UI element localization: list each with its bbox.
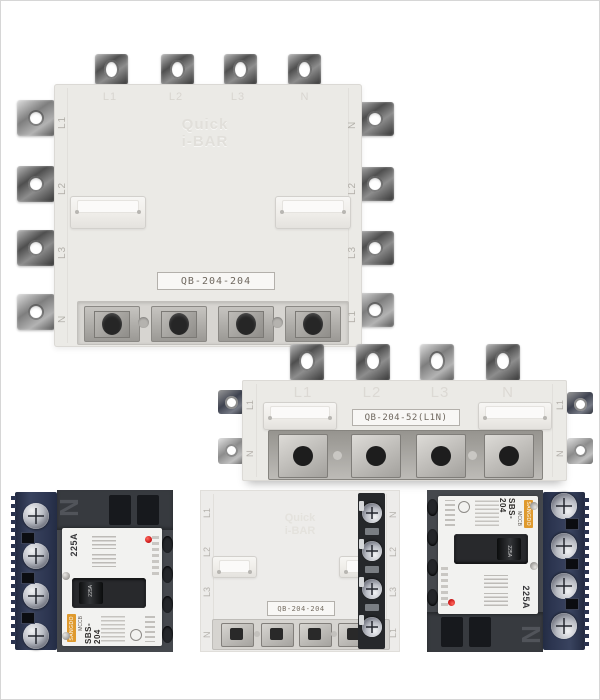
terminal-block-dark bbox=[358, 493, 385, 649]
screw-terminal bbox=[285, 306, 341, 342]
terminal-slot-icon bbox=[565, 518, 579, 530]
clip-screw-icon bbox=[217, 570, 221, 574]
lug-hole-icon bbox=[28, 240, 44, 256]
side-phase-label: L2 bbox=[202, 537, 212, 557]
clip-screw-icon bbox=[344, 570, 348, 574]
breaker-housing: N 225A 225A bbox=[427, 490, 543, 652]
cutout-icon bbox=[162, 626, 173, 643]
screw-icon bbox=[530, 502, 538, 510]
terminal-lug-icon bbox=[17, 100, 55, 136]
ce-mark-icon bbox=[130, 629, 142, 641]
lug-hole-icon bbox=[367, 240, 383, 256]
busbar-tab-icon bbox=[365, 528, 379, 535]
screw-icon bbox=[551, 613, 577, 639]
phase-label: L3 bbox=[431, 384, 450, 401]
breaker-top-band: N bbox=[427, 612, 543, 652]
terminal-block-blue bbox=[15, 492, 57, 650]
margin-line bbox=[256, 384, 257, 477]
tray-dot-icon bbox=[331, 631, 337, 637]
screw-terminal bbox=[261, 623, 294, 647]
terminal-lug-icon bbox=[17, 294, 55, 330]
screw-terminal bbox=[416, 434, 466, 478]
breaker-model-label: SBS-204 bbox=[84, 614, 102, 644]
side-phase-label: L1 bbox=[57, 107, 68, 129]
tray-dot-icon bbox=[468, 451, 477, 460]
screw-terminal bbox=[351, 434, 401, 478]
vent-icon bbox=[109, 495, 131, 525]
mounting-clip bbox=[478, 402, 552, 430]
terminal-lug-icon bbox=[95, 54, 128, 85]
terminal-tray bbox=[77, 301, 349, 345]
side-phase-label: L2 bbox=[347, 173, 358, 195]
cert-text-column bbox=[441, 566, 448, 606]
lug-hole-icon bbox=[225, 396, 238, 409]
spec-text-lines bbox=[92, 554, 116, 567]
tray-dot-icon bbox=[272, 317, 283, 328]
housing-letter: N bbox=[516, 625, 547, 644]
mounting-clip bbox=[212, 556, 257, 578]
breaker-front-panel: 225A 225A SANGDO MCCB SBS-204 bbox=[62, 528, 162, 646]
breaker-toggle-recess: 225A bbox=[72, 578, 146, 608]
lug-hole-icon bbox=[28, 304, 44, 320]
phase-label: L2 bbox=[363, 384, 382, 401]
nameplate-area: SANGDO MCCB SBS-204 bbox=[441, 498, 533, 528]
phase-label: L1 bbox=[103, 91, 117, 103]
clip-screw-icon bbox=[543, 416, 547, 420]
busbar-tab-icon bbox=[365, 604, 379, 611]
phase-label: N bbox=[502, 384, 514, 401]
screw-terminal bbox=[84, 306, 140, 342]
screw-icon bbox=[551, 573, 577, 599]
screw-icon bbox=[362, 503, 382, 523]
lug-hole-icon bbox=[367, 176, 383, 192]
clip-screw-icon bbox=[268, 416, 272, 420]
spec-text-lines bbox=[475, 500, 499, 526]
side-phase-label: L1 bbox=[555, 390, 565, 410]
terminal-slot-icon bbox=[565, 558, 579, 570]
terminal-tray bbox=[268, 430, 543, 480]
terminal-lug-icon bbox=[17, 166, 55, 202]
lug-hole-icon bbox=[429, 351, 445, 371]
busbar-adapter-front: L1 L2 L3 N Quick i-BAR QB-204-204 L1 L2 … bbox=[54, 84, 362, 347]
terminal-lug-icon bbox=[218, 390, 244, 414]
busbar-tab-icon bbox=[365, 566, 379, 573]
connector-mark-icon bbox=[359, 539, 364, 549]
screw-icon bbox=[62, 572, 70, 580]
side-phase-label: L1 bbox=[347, 301, 358, 323]
terminal-lug-icon bbox=[357, 102, 394, 136]
side-phase-label: L2 bbox=[388, 537, 398, 557]
lug-hole-icon bbox=[28, 176, 44, 192]
circuit-breaker-left: N 225A 225A bbox=[15, 490, 200, 652]
tray-dot-icon bbox=[333, 451, 342, 460]
model-label: QB-204-204 bbox=[157, 272, 275, 290]
brand-emboss: Quick bbox=[285, 512, 316, 524]
terminal-slot-icon bbox=[21, 612, 35, 624]
model-label: QB-204-204 bbox=[267, 601, 335, 616]
terminal-slot-icon bbox=[565, 598, 579, 610]
phase-label: L3 bbox=[231, 91, 245, 103]
phase-label: N bbox=[301, 91, 310, 103]
spec-text-lines bbox=[92, 536, 116, 549]
toggle-rating-label: 225A bbox=[88, 585, 94, 597]
screw-terminal bbox=[151, 306, 207, 342]
screw-icon bbox=[23, 503, 49, 529]
breaker-housing: N 225A 225A bbox=[57, 490, 173, 652]
screw-terminal bbox=[278, 434, 328, 478]
cert-marks-icon bbox=[445, 500, 455, 526]
lug-hole-icon bbox=[233, 60, 248, 79]
screw-icon bbox=[23, 623, 49, 649]
mounting-clip bbox=[70, 196, 146, 229]
breaker-toggle-handle: 225A bbox=[497, 538, 521, 560]
screw-icon bbox=[23, 583, 49, 609]
side-phase-label: L3 bbox=[57, 237, 68, 259]
mounting-clip bbox=[275, 196, 351, 229]
terminal-lug-icon bbox=[486, 344, 520, 381]
terminal-lug-icon bbox=[218, 438, 244, 464]
circuit-breaker-right: N 225A 225A bbox=[400, 490, 585, 652]
busbar-strip-adapter: L1 L2 L3 N QB-204-52(L1N) L1 N L1 N bbox=[242, 380, 567, 481]
lug-hole-icon bbox=[574, 398, 587, 411]
nameplate-area: SANGDO MCCB SBS-204 bbox=[67, 614, 159, 644]
vent-icon bbox=[137, 495, 159, 525]
side-phase-label: L1 bbox=[245, 390, 255, 410]
breaker-toggle-handle: 225A bbox=[79, 582, 103, 604]
brand-emboss: i-BAR bbox=[182, 133, 229, 150]
lug-hole-icon bbox=[365, 351, 381, 371]
screw-icon bbox=[530, 562, 538, 570]
breaker-model-label: SBS-204 bbox=[498, 498, 516, 528]
lug-hole-icon bbox=[170, 60, 185, 79]
terminal-lug-icon bbox=[357, 231, 394, 265]
side-phase-label: N bbox=[245, 437, 255, 457]
screw-icon bbox=[362, 541, 382, 561]
cutout-icon bbox=[427, 589, 438, 606]
clip-screw-icon bbox=[248, 570, 252, 574]
brand-emboss: i-BAR bbox=[285, 525, 316, 537]
breaker-toggle-recess: 225A bbox=[454, 534, 528, 564]
lug-hole-icon bbox=[367, 302, 383, 318]
trip-indicator-icon bbox=[145, 536, 152, 543]
clip-screw-icon bbox=[75, 210, 79, 214]
screw-terminal bbox=[218, 306, 274, 342]
side-phase-label: N bbox=[57, 301, 68, 323]
side-phase-label: L3 bbox=[202, 577, 212, 597]
terminal-lug-icon bbox=[356, 344, 390, 381]
terminal-lug-icon bbox=[17, 230, 55, 266]
clip-screw-icon bbox=[342, 210, 346, 214]
side-phase-label: N bbox=[555, 437, 565, 457]
cutout-icon bbox=[427, 559, 438, 576]
screw-terminal bbox=[221, 623, 254, 647]
cert-text-column bbox=[152, 536, 159, 576]
spec-text-lines bbox=[101, 616, 125, 642]
clip-screw-icon bbox=[483, 416, 487, 420]
spec-text-lines bbox=[484, 575, 508, 588]
terminal-lug-icon bbox=[288, 54, 321, 85]
clip-screw-icon bbox=[328, 416, 332, 420]
screw-icon bbox=[362, 579, 382, 599]
terminal-slot-icon bbox=[21, 572, 35, 584]
terminal-lug-icon bbox=[161, 54, 194, 85]
cutout-icon bbox=[162, 566, 173, 583]
side-phase-label: L2 bbox=[57, 173, 68, 195]
brand-emboss: Quick bbox=[182, 116, 229, 133]
vent-icon bbox=[441, 617, 463, 647]
screw-terminal bbox=[299, 623, 332, 647]
lug-hole-icon bbox=[367, 111, 383, 127]
lug-hole-icon bbox=[225, 444, 238, 457]
terminal-lug-icon bbox=[357, 293, 394, 327]
tray-dot-icon bbox=[254, 631, 260, 637]
rating-label: 225A bbox=[521, 585, 531, 609]
lug-hole-icon bbox=[299, 351, 315, 371]
connector-mark-icon bbox=[359, 501, 364, 511]
terminal-lug-icon bbox=[567, 392, 593, 414]
terminal-lug-icon bbox=[567, 438, 593, 464]
lug-hole-icon bbox=[495, 351, 511, 371]
side-phase-label: L3 bbox=[388, 577, 398, 597]
side-phase-label: N bbox=[347, 107, 358, 129]
side-phase-label: L3 bbox=[347, 237, 358, 259]
housing-letter: N bbox=[53, 498, 84, 517]
terminal-lug-icon bbox=[290, 344, 324, 381]
clip-screw-icon bbox=[280, 210, 284, 214]
screw-terminal bbox=[484, 434, 534, 478]
spec-text-lines bbox=[484, 593, 508, 606]
phase-label: L2 bbox=[169, 91, 183, 103]
side-phase-label: N bbox=[202, 618, 212, 638]
vent-icon bbox=[469, 617, 491, 647]
terminal-lug-icon bbox=[357, 167, 394, 201]
lug-hole-icon bbox=[104, 60, 119, 79]
mounting-clip bbox=[263, 402, 337, 430]
assembled-product-photo: N 225A 225A bbox=[15, 490, 585, 652]
cutout-icon bbox=[162, 536, 173, 553]
breaker-front-panel: 225A 225A SANGDO MCCB SBS-204 bbox=[438, 496, 538, 614]
breaker-top-band: N bbox=[57, 490, 173, 530]
screw-icon bbox=[23, 543, 49, 569]
rating-label: 225A bbox=[69, 533, 79, 557]
product-photo: L1 L2 L3 N Quick i-BAR QB-204-204 L1 L2 … bbox=[0, 0, 600, 700]
terminal-lug-icon bbox=[420, 344, 454, 381]
lug-hole-icon bbox=[297, 60, 312, 79]
type-label: MCCB bbox=[516, 511, 522, 526]
phase-label: L1 bbox=[294, 384, 313, 401]
toggle-rating-label: 225A bbox=[506, 545, 512, 557]
side-phase-label: N bbox=[388, 498, 398, 518]
side-phase-label: L1 bbox=[202, 498, 212, 518]
terminal-block-blue bbox=[543, 492, 585, 650]
cutout-icon bbox=[427, 499, 438, 516]
trip-indicator-icon bbox=[448, 599, 455, 606]
connector-mark-icon bbox=[359, 615, 364, 625]
clip-screw-icon bbox=[137, 210, 141, 214]
tray-dot-icon bbox=[138, 317, 149, 328]
screw-icon bbox=[551, 493, 577, 519]
lug-hole-icon bbox=[574, 444, 587, 457]
ce-mark-icon bbox=[458, 501, 470, 513]
terminal-slot-icon bbox=[21, 532, 35, 544]
screw-icon bbox=[62, 632, 70, 640]
lug-hole-icon bbox=[28, 110, 44, 126]
screw-icon bbox=[551, 533, 577, 559]
screw-icon bbox=[362, 617, 382, 637]
terminal-lug-icon bbox=[224, 54, 257, 85]
cutout-icon bbox=[427, 529, 438, 546]
cutout-icon bbox=[162, 596, 173, 613]
model-label: QB-204-52(L1N) bbox=[352, 409, 460, 426]
margin-line bbox=[552, 384, 553, 477]
cert-marks-icon bbox=[145, 616, 155, 642]
connector-mark-icon bbox=[359, 577, 364, 587]
